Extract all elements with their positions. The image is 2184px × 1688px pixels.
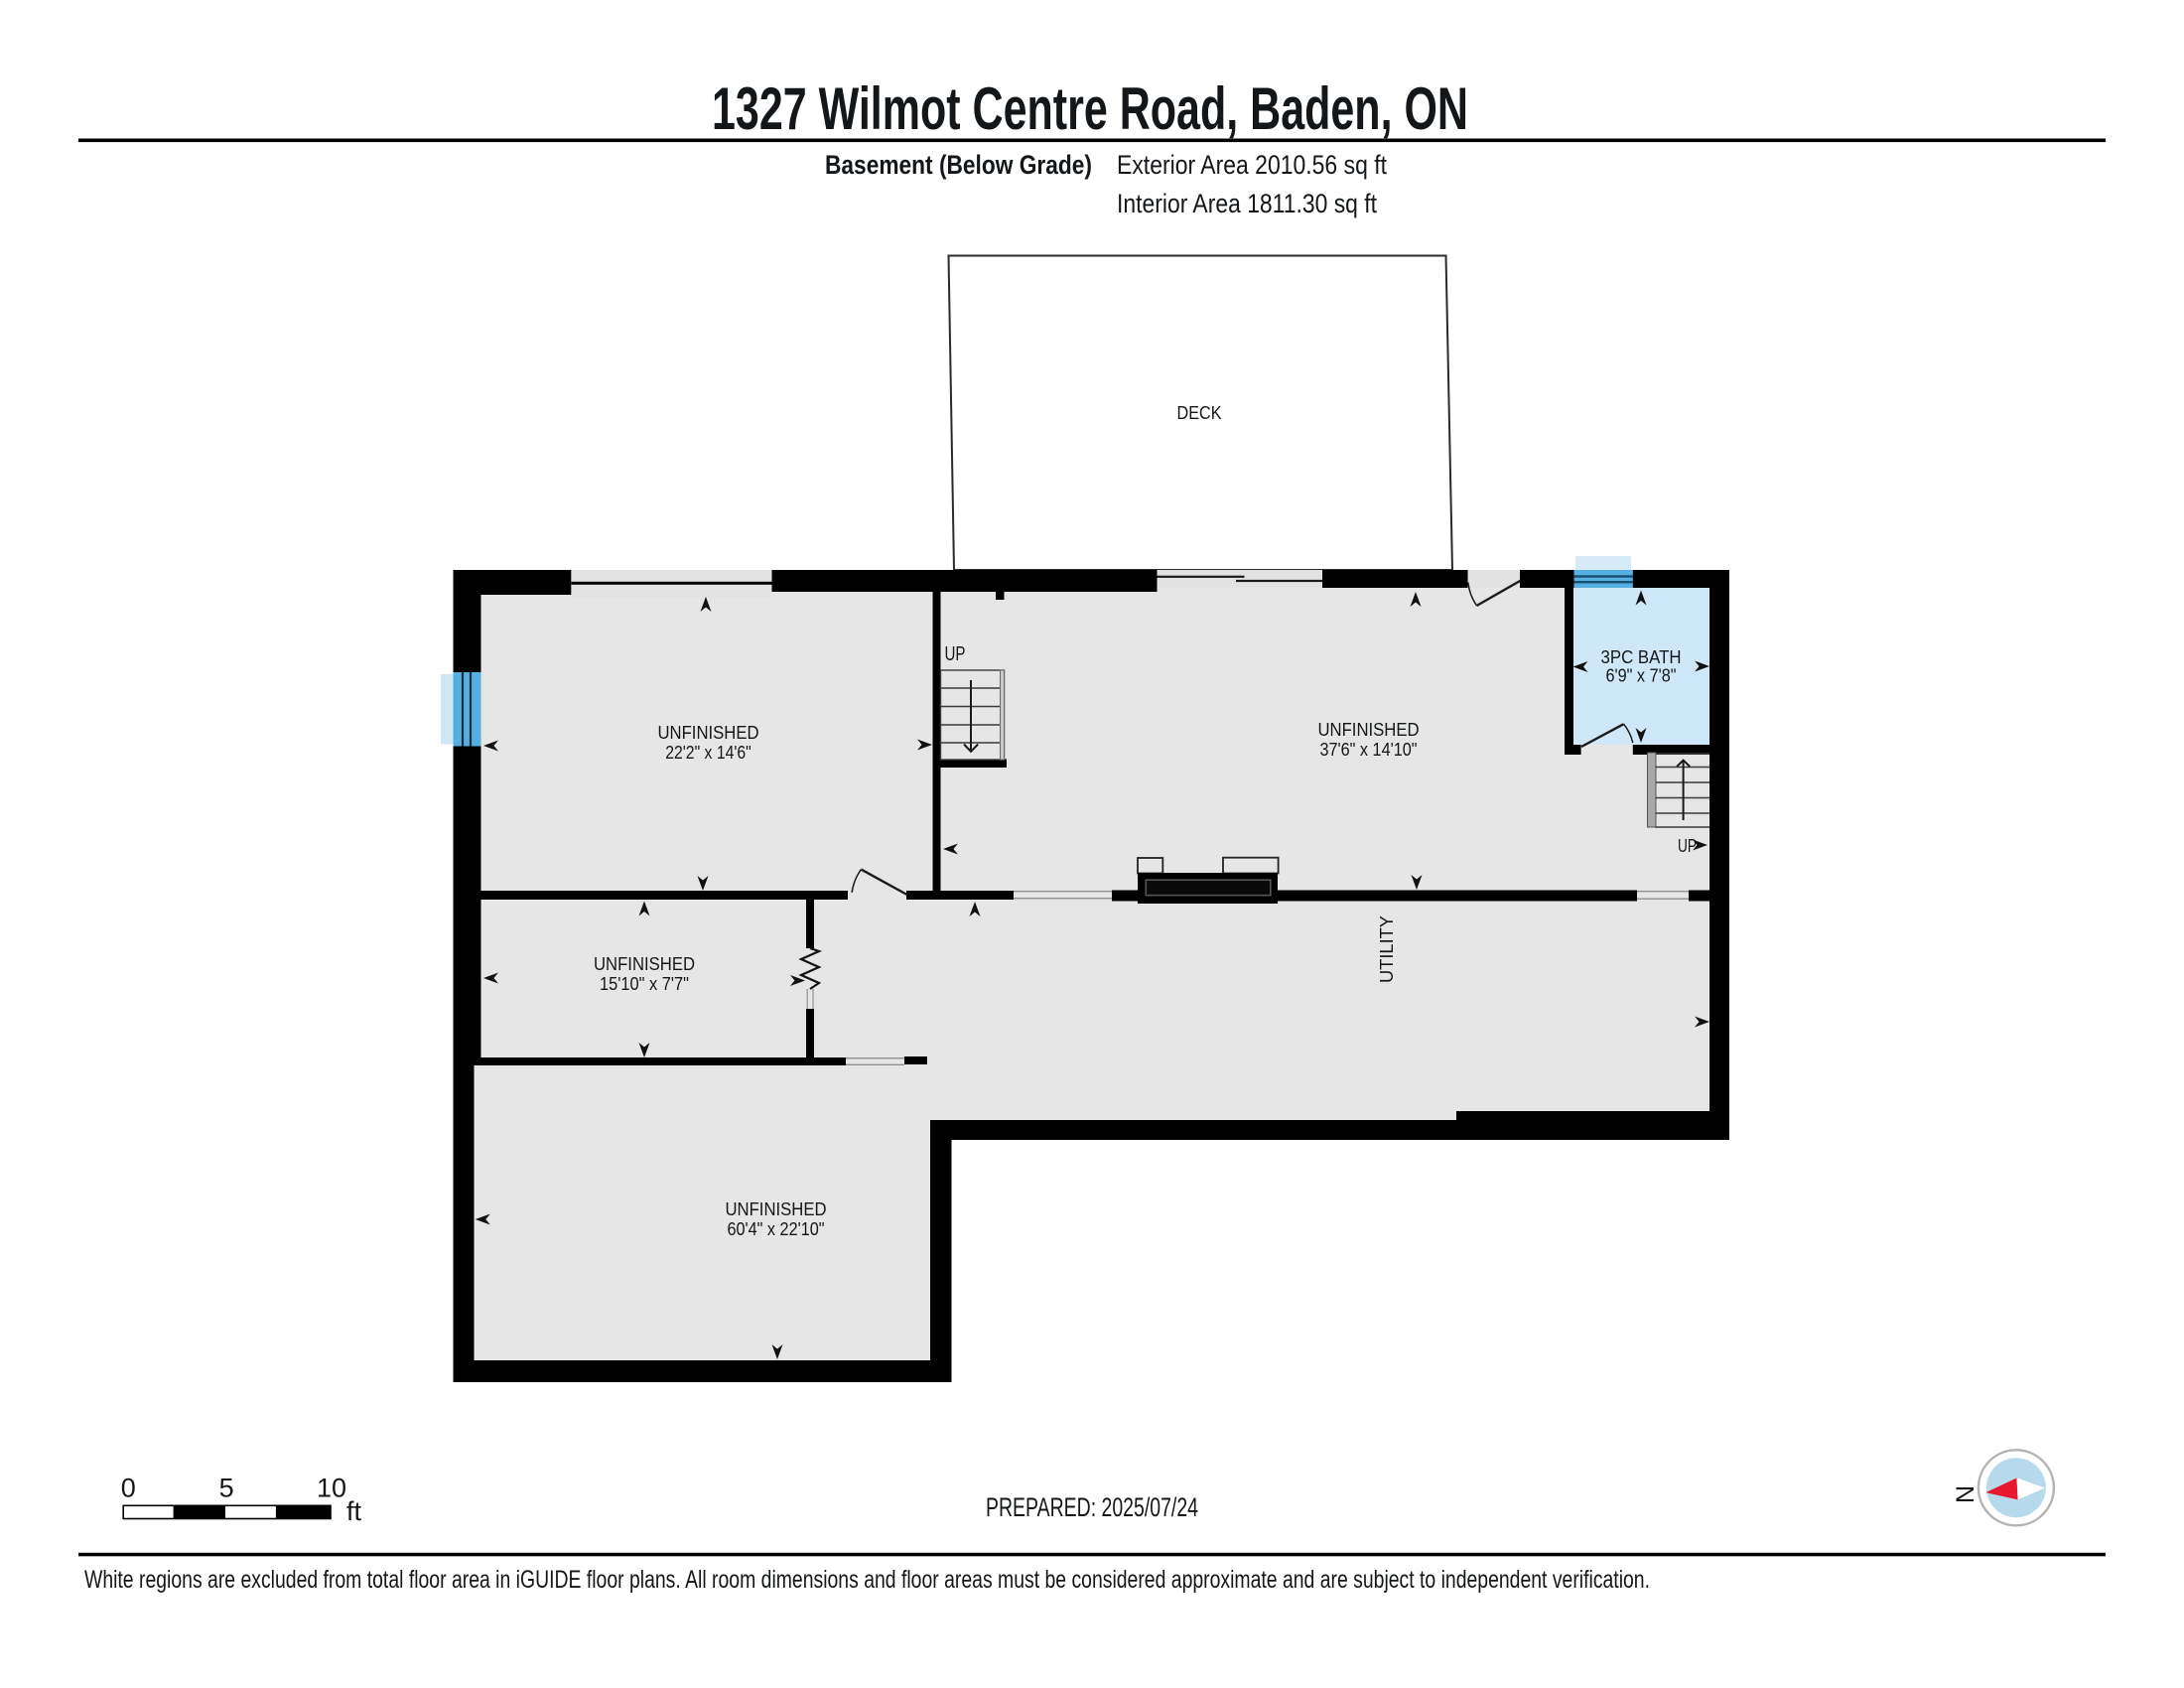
svg-text:37'6" x 14'10": 37'6" x 14'10": [1320, 739, 1418, 760]
svg-text:Interior Area 1811.30 sq ft: Interior Area 1811.30 sq ft: [1117, 189, 1377, 218]
svg-text:N: N: [1952, 1485, 1979, 1503]
svg-text:UNFINISHED: UNFINISHED: [658, 722, 759, 743]
svg-text:Exterior Area 2010.56 sq ft: Exterior Area 2010.56 sq ft: [1117, 150, 1387, 180]
svg-text:15'10" x 7'7": 15'10" x 7'7": [600, 973, 689, 994]
svg-text:10: 10: [317, 1474, 346, 1503]
svg-text:0: 0: [121, 1474, 136, 1503]
svg-text:UTILITY: UTILITY: [1377, 915, 1397, 983]
svg-text:UP: UP: [1678, 836, 1697, 856]
svg-text:22'2" x 14'6": 22'2" x 14'6": [665, 742, 751, 763]
svg-text:UNFINISHED: UNFINISHED: [726, 1198, 827, 1219]
svg-text:Basement (Below Grade): Basement (Below Grade): [825, 150, 1092, 180]
svg-text:DECK: DECK: [1177, 403, 1222, 423]
svg-text:60'4" x 22'10": 60'4" x 22'10": [728, 1218, 825, 1239]
svg-text:ft: ft: [346, 1496, 362, 1526]
svg-text:UNFINISHED: UNFINISHED: [594, 953, 695, 974]
svg-text:1327 Wilmot Centre Road, Baden: 1327 Wilmot Centre Road, Baden, ON: [712, 75, 1468, 142]
svg-text:5: 5: [219, 1474, 234, 1503]
svg-text:PREPARED: 2025/07/24: PREPARED: 2025/07/24: [986, 1492, 1198, 1522]
svg-text:White regions are excluded fro: White regions are excluded from total fl…: [84, 1566, 1650, 1594]
svg-text:UP: UP: [945, 643, 966, 665]
svg-text:6'9" x 7'8": 6'9" x 7'8": [1606, 665, 1677, 686]
svg-text:UNFINISHED: UNFINISHED: [1318, 719, 1420, 740]
